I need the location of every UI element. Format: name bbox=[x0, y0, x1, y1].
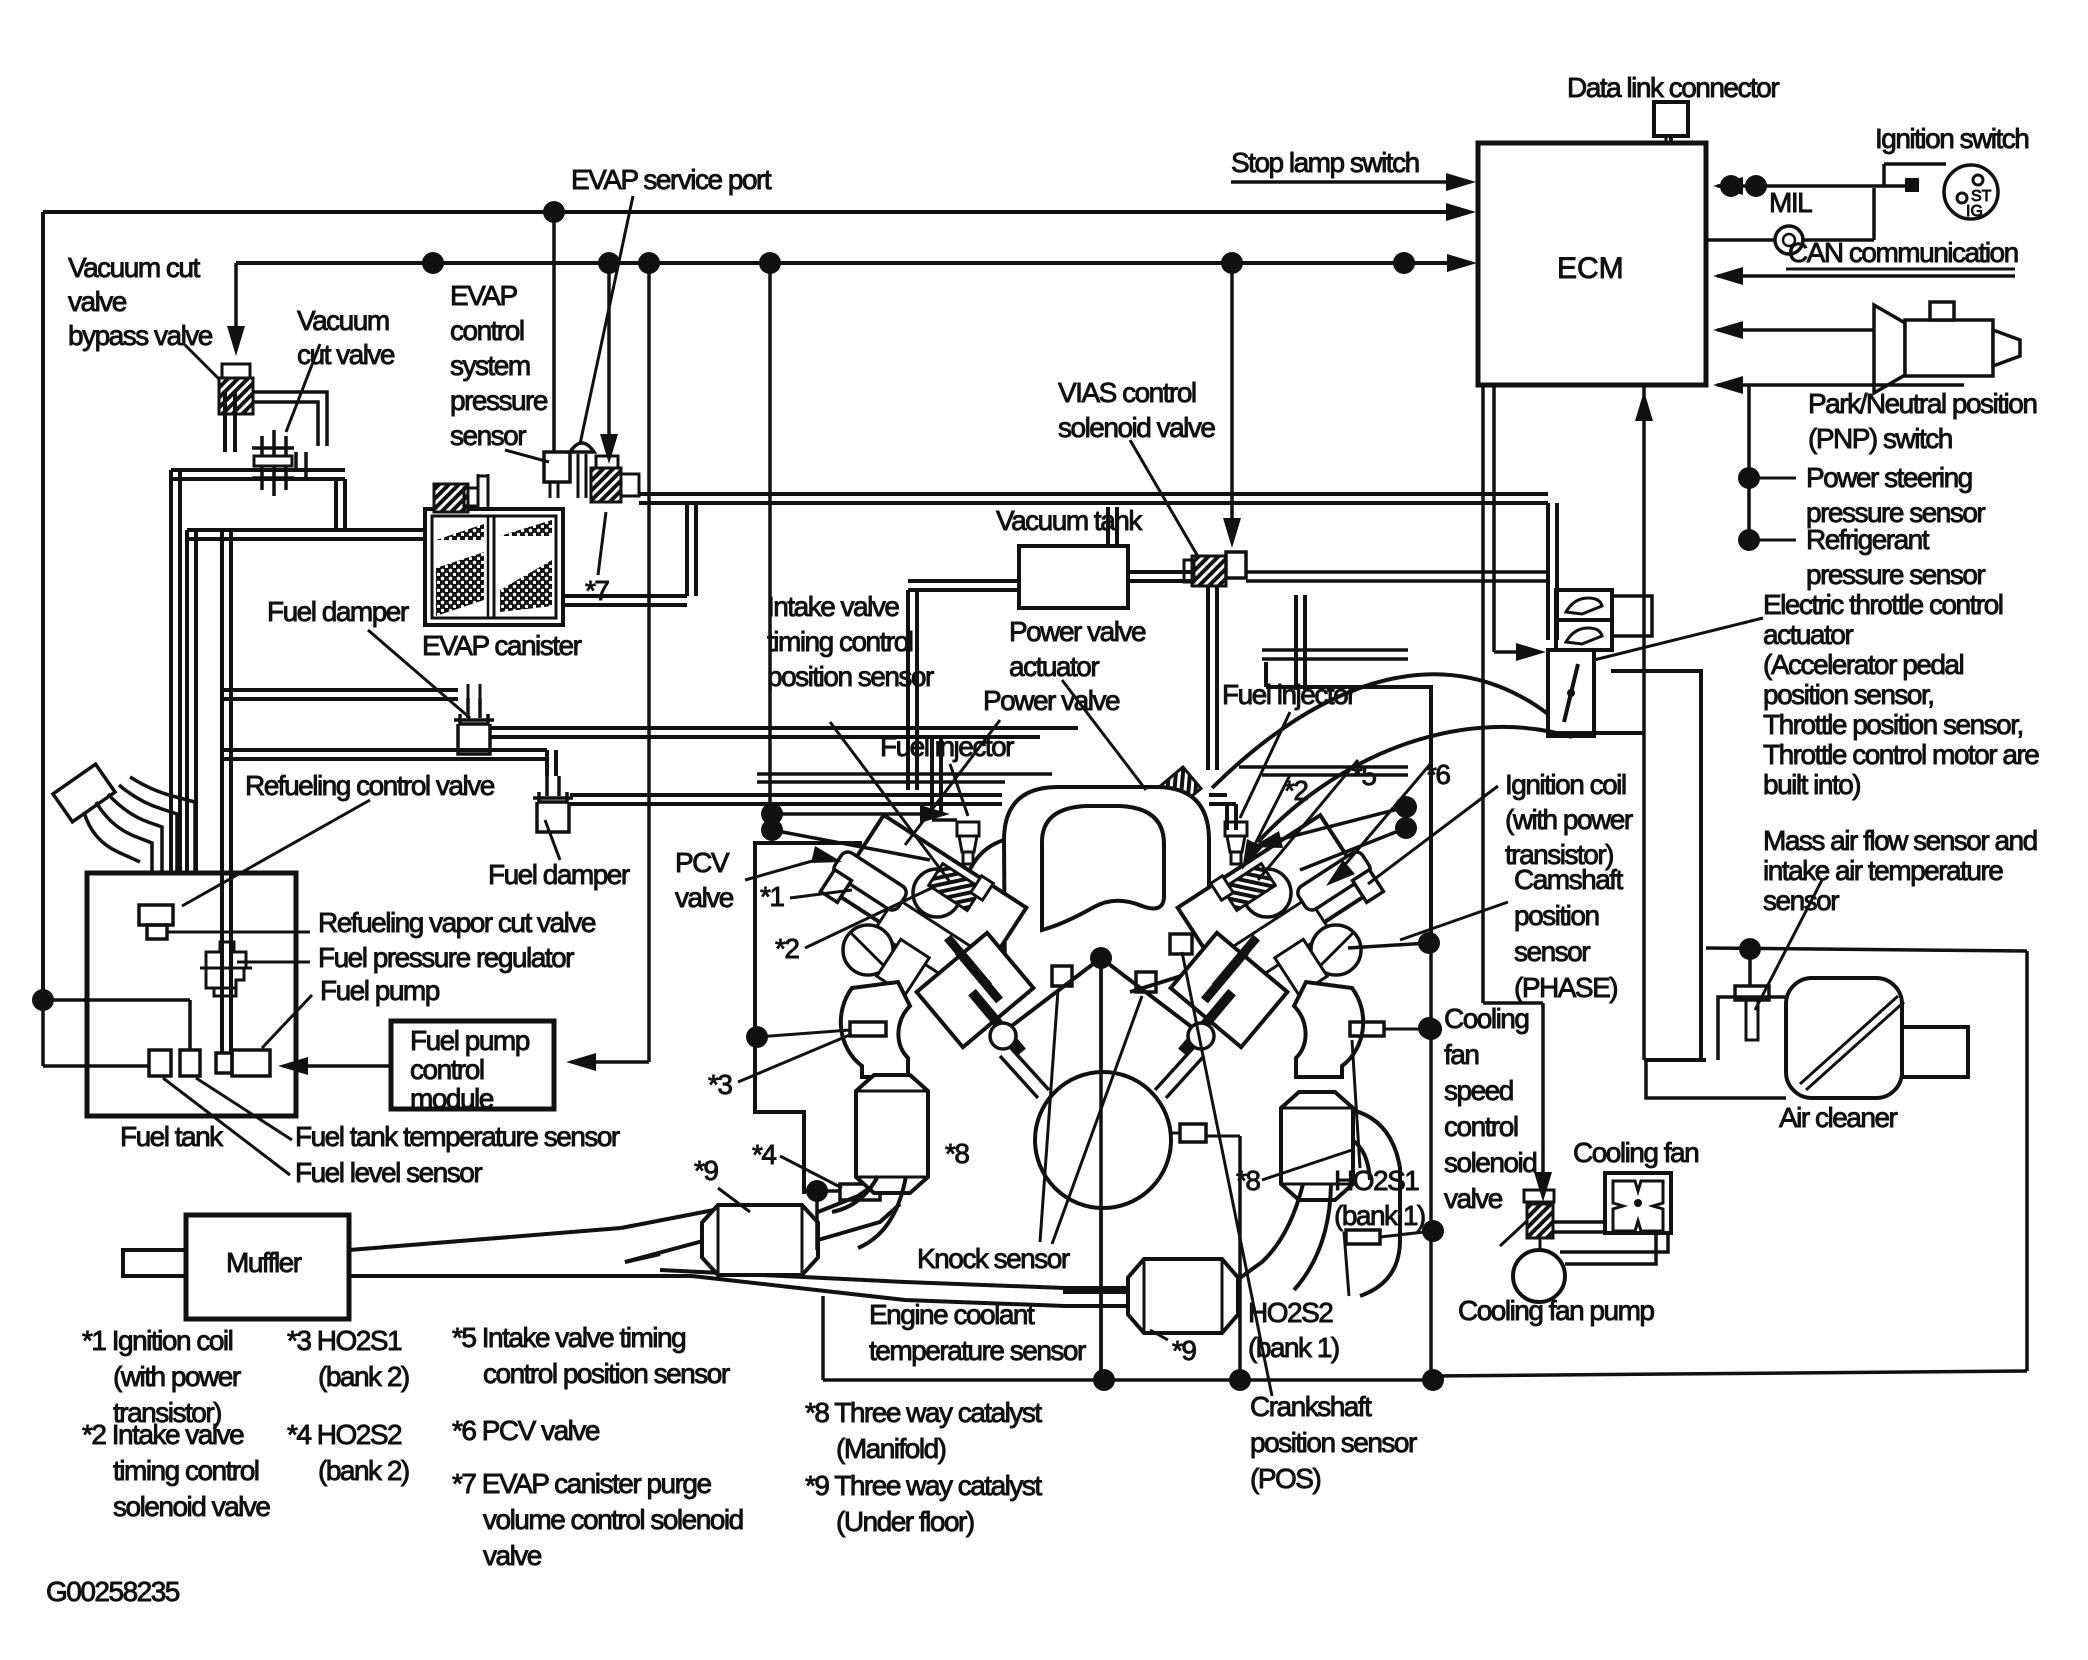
svg-text:(Manifold): (Manifold) bbox=[836, 1433, 946, 1464]
svg-text:Cooling: Cooling bbox=[1444, 1003, 1528, 1034]
svg-text:*7: *7 bbox=[585, 575, 609, 606]
svg-text:Fuel pump: Fuel pump bbox=[320, 975, 440, 1006]
svg-text:*8: *8 bbox=[945, 1138, 969, 1169]
svg-text:HO2S2: HO2S2 bbox=[1248, 1297, 1333, 1328]
svg-text:bypass valve: bypass valve bbox=[68, 320, 213, 351]
svg-text:pressure: pressure bbox=[450, 385, 548, 416]
svg-text:position sensor: position sensor bbox=[767, 661, 934, 692]
svg-text:Refueling vapor cut valve: Refueling vapor cut valve bbox=[318, 907, 596, 938]
svg-text:position sensor,: position sensor, bbox=[1763, 679, 1934, 710]
svg-text:Fuel injector: Fuel injector bbox=[1222, 679, 1356, 710]
svg-text:Knock sensor: Knock sensor bbox=[917, 1243, 1070, 1274]
svg-text:*4: *4 bbox=[752, 1139, 776, 1170]
svg-text:EVAP canister: EVAP canister bbox=[422, 630, 582, 661]
svg-text:MIL: MIL bbox=[1769, 187, 1812, 218]
svg-text:Fuel pressure regulator: Fuel pressure regulator bbox=[318, 942, 574, 973]
svg-text:speed: speed bbox=[1444, 1075, 1513, 1106]
svg-text:CAN communication: CAN communication bbox=[1788, 237, 2018, 268]
svg-text:PCV: PCV bbox=[675, 847, 730, 878]
svg-text:control position sensor: control position sensor bbox=[483, 1358, 730, 1389]
svg-text:Electric throttle control: Electric throttle control bbox=[1763, 589, 2003, 620]
svg-text:solenoid valve: solenoid valve bbox=[1058, 412, 1215, 443]
svg-text:IG: IG bbox=[1966, 203, 1983, 220]
svg-text:Fuel injector: Fuel injector bbox=[880, 731, 1014, 762]
svg-text:system: system bbox=[450, 350, 530, 381]
svg-text:valve: valve bbox=[1444, 1183, 1503, 1214]
svg-text:Fuel tank: Fuel tank bbox=[120, 1121, 224, 1152]
svg-text:(POS): (POS) bbox=[1250, 1463, 1320, 1494]
svg-text:Power valve: Power valve bbox=[983, 685, 1120, 716]
svg-text:Crankshaft: Crankshaft bbox=[1250, 1391, 1372, 1422]
svg-text:Muffler: Muffler bbox=[226, 1247, 302, 1278]
svg-text:Camshaft: Camshaft bbox=[1514, 864, 1624, 895]
svg-text:(bank 1): (bank 1) bbox=[1334, 1200, 1425, 1231]
svg-text:fan: fan bbox=[1444, 1039, 1478, 1070]
svg-text:*9 Three way catalyst: *9 Three way catalyst bbox=[805, 1470, 1042, 1501]
svg-text:Power valve: Power valve bbox=[1009, 616, 1146, 647]
svg-text:G00258235: G00258235 bbox=[46, 1576, 180, 1607]
svg-text:sensor: sensor bbox=[1514, 936, 1590, 967]
svg-text:Vacuum tank: Vacuum tank bbox=[996, 505, 1143, 536]
svg-text:Data link connector: Data link connector bbox=[1567, 72, 1779, 103]
svg-text:EVAP service port: EVAP service port bbox=[571, 164, 772, 195]
svg-text:position: position bbox=[1514, 900, 1599, 931]
svg-text:Engine coolant: Engine coolant bbox=[869, 1299, 1035, 1330]
svg-text:valve: valve bbox=[483, 1540, 542, 1571]
svg-text:control: control bbox=[1444, 1111, 1518, 1142]
svg-text:*2: *2 bbox=[775, 933, 799, 964]
svg-text:(PNP) switch: (PNP) switch bbox=[1808, 423, 1952, 454]
svg-text:ECM: ECM bbox=[1557, 252, 1624, 285]
svg-text:*1 Ignition coil: *1 Ignition coil bbox=[82, 1325, 233, 1356]
svg-text:Fuel level sensor: Fuel level sensor bbox=[295, 1157, 482, 1188]
svg-text:*8 Three way catalyst: *8 Three way catalyst bbox=[805, 1397, 1042, 1428]
svg-text:module: module bbox=[410, 1083, 494, 1114]
svg-text:valve: valve bbox=[68, 286, 127, 317]
svg-text:volume control solenoid: volume control solenoid bbox=[483, 1504, 743, 1535]
svg-text:EVAP: EVAP bbox=[450, 280, 517, 311]
svg-text:timing control: timing control bbox=[767, 626, 913, 657]
svg-text:Vacuum cut: Vacuum cut bbox=[68, 252, 200, 283]
svg-text:*5 Intake valve timing: *5 Intake valve timing bbox=[452, 1322, 685, 1353]
svg-text:*3: *3 bbox=[708, 1069, 732, 1100]
svg-text:Fuel tank temperature sensor: Fuel tank temperature sensor bbox=[295, 1121, 620, 1152]
svg-text:HO2S1: HO2S1 bbox=[1334, 1165, 1419, 1196]
svg-text:Throttle control motor are: Throttle control motor are bbox=[1763, 739, 2039, 770]
svg-text:solenoid: solenoid bbox=[1444, 1147, 1536, 1178]
svg-text:built into): built into) bbox=[1763, 769, 1860, 800]
svg-text:Mass air flow sensor and: Mass air flow sensor and bbox=[1763, 825, 2037, 856]
svg-text:control: control bbox=[410, 1054, 484, 1085]
svg-text:Power steering: Power steering bbox=[1806, 462, 1972, 493]
svg-text:Air cleaner: Air cleaner bbox=[1779, 1102, 1898, 1133]
svg-text:position sensor: position sensor bbox=[1250, 1427, 1417, 1458]
svg-text:intake air temperature: intake air temperature bbox=[1763, 855, 2003, 886]
svg-text:*7 EVAP canister purge: *7 EVAP canister purge bbox=[452, 1468, 712, 1499]
svg-text:VIAS control: VIAS control bbox=[1058, 377, 1196, 408]
svg-text:Refueling control valve: Refueling control valve bbox=[245, 770, 495, 801]
svg-text:temperature sensor: temperature sensor bbox=[869, 1335, 1086, 1366]
svg-text:*4 HO2S2: *4 HO2S2 bbox=[287, 1419, 402, 1450]
svg-text:*6 PCV valve: *6 PCV valve bbox=[452, 1415, 600, 1446]
svg-text:valve: valve bbox=[675, 882, 734, 913]
svg-text:solenoid valve: solenoid valve bbox=[113, 1491, 270, 1522]
svg-text:*1: *1 bbox=[760, 881, 784, 912]
svg-text:Cooling fan: Cooling fan bbox=[1573, 1137, 1698, 1168]
svg-text:Stop lamp switch: Stop lamp switch bbox=[1231, 147, 1419, 178]
svg-text:(bank 2): (bank 2) bbox=[318, 1361, 409, 1392]
svg-text:pressure sensor: pressure sensor bbox=[1806, 559, 1985, 590]
svg-text:Cooling fan pump: Cooling fan pump bbox=[1458, 1295, 1654, 1326]
svg-text:Refrigerant: Refrigerant bbox=[1806, 524, 1930, 555]
svg-text:(Accelerator pedal: (Accelerator pedal bbox=[1763, 649, 1964, 680]
svg-text:actuator: actuator bbox=[1763, 619, 1853, 650]
svg-text:*3 HO2S1: *3 HO2S1 bbox=[287, 1325, 402, 1356]
svg-text:Vacuum: Vacuum bbox=[297, 305, 389, 336]
svg-text:(PHASE): (PHASE) bbox=[1514, 972, 1617, 1003]
svg-text:(with power: (with power bbox=[113, 1361, 241, 1392]
svg-text:*9: *9 bbox=[694, 1155, 718, 1186]
svg-text:actuator: actuator bbox=[1009, 651, 1099, 682]
svg-text:Intake valve: Intake valve bbox=[767, 591, 899, 622]
svg-text:sensor: sensor bbox=[450, 420, 526, 451]
svg-text:(with power: (with power bbox=[1505, 804, 1633, 835]
svg-text:Ignition switch: Ignition switch bbox=[1875, 123, 2028, 154]
svg-text:timing control: timing control bbox=[113, 1455, 259, 1486]
svg-text:Park/Neutral position: Park/Neutral position bbox=[1808, 388, 2036, 419]
svg-text:Fuel damper: Fuel damper bbox=[267, 596, 409, 627]
svg-text:Throttle position sensor,: Throttle position sensor, bbox=[1763, 709, 2023, 740]
svg-text:control: control bbox=[450, 315, 524, 346]
svg-text:*2 Intake valve: *2 Intake valve bbox=[82, 1419, 244, 1450]
svg-text:sensor: sensor bbox=[1763, 885, 1839, 916]
svg-text:Ignition coil: Ignition coil bbox=[1505, 769, 1626, 800]
svg-text:Fuel pump: Fuel pump bbox=[410, 1025, 530, 1056]
svg-text:(Under floor): (Under floor) bbox=[836, 1506, 974, 1537]
svg-text:Fuel damper: Fuel damper bbox=[488, 859, 630, 890]
svg-text:*9: *9 bbox=[1172, 1335, 1196, 1366]
svg-text:(bank 2): (bank 2) bbox=[318, 1455, 409, 1486]
